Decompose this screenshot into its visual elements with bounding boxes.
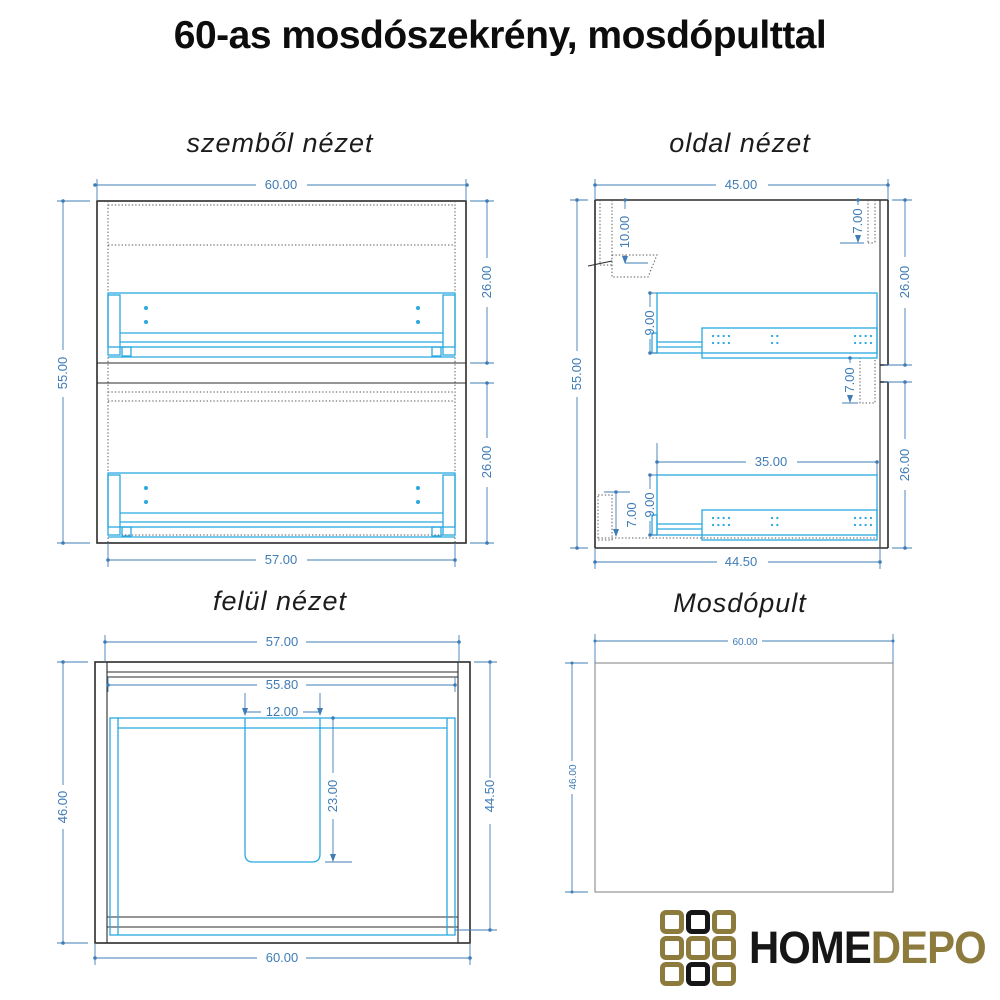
counter-dimensions: 60.00 46.00: [565, 634, 895, 894]
side-drawer-hardware-lower: [652, 475, 877, 540]
logo-text-depo: DEPO: [871, 922, 986, 973]
dim-top-inner-depth: 44.50: [482, 780, 497, 813]
logo-text: HOMEDEPO: [749, 922, 986, 974]
dim-side-top-rail: 7.00: [850, 208, 865, 233]
dim-top-bottom-width: 60.00: [266, 950, 299, 965]
logo-square-gold: [712, 910, 736, 934]
dim-side-bottom-rail: 7.00: [624, 502, 639, 527]
counter-outline: [595, 663, 893, 892]
logo-square-black: [686, 962, 710, 986]
dim-front-lower-drawer: 26.00: [479, 446, 494, 479]
logo-square-gold: [660, 962, 684, 986]
logo-square-gold: [660, 910, 684, 934]
dim-top-inner-width: 55.80: [266, 677, 299, 692]
top-hardware: [110, 718, 455, 935]
dim-side-overall-depth: 45.00: [725, 177, 758, 192]
front-view-drawing: 60.00 55.00 26.00 26.00 57.00: [50, 125, 550, 585]
dim-top-cutout-width: 12.00: [266, 704, 299, 719]
front-dimensions: 60.00 55.00 26.00 26.00 57.00: [55, 177, 494, 567]
dim-side-lower-front: 26.00: [897, 449, 912, 482]
dim-top-outer-width: 57.00: [266, 634, 299, 649]
sink-cutout: [245, 718, 320, 862]
dim-front-overall-height: 55.00: [55, 357, 70, 390]
dim-front-upper-drawer: 26.00: [479, 266, 494, 299]
side-drawer-hardware-upper: [652, 293, 877, 358]
dim-front-inner-width: 57.00: [265, 552, 298, 567]
dim-side-bottom-depth: 44.50: [725, 554, 758, 569]
dim-side-slide-length: 35.00: [755, 454, 788, 469]
dim-side-lower-slide: 9.00: [642, 492, 657, 517]
dim-side-upper-front: 26.00: [897, 266, 912, 299]
side-view-drawing: 45.00 55.00 10.00 7.00 26.00 26.00 7.00 …: [560, 125, 1000, 585]
logo-square-gold: [712, 936, 736, 960]
page-title: 60-as mosdószekrény, mosdópulttal: [0, 14, 1000, 58]
dim-top-cutout-depth: 23.00: [325, 780, 340, 813]
front-drawer-hardware-upper: [108, 293, 455, 357]
dim-side-upper-slide: 9.00: [642, 310, 657, 335]
front-cabinet-outline: [97, 201, 466, 543]
dim-side-hanger-offset: 10.00: [617, 216, 632, 249]
logo-square-black: [686, 910, 710, 934]
dim-side-mid-rail: 7.00: [842, 367, 857, 392]
logo-square-gold: [712, 962, 736, 986]
top-view-drawing: 57.00 55.80 12.00 23.00 46.00 44.50 60.0…: [50, 595, 550, 1000]
logo-text-home: HOME: [749, 922, 871, 973]
side-hidden-edges: [598, 200, 877, 540]
logo-square-gold: [660, 936, 684, 960]
dim-counter-depth: 46.00: [568, 764, 579, 789]
brand-logo: HOMEDEPO: [660, 910, 1000, 986]
dim-front-overall-width: 60.00: [265, 177, 298, 192]
logo-square-gold: [686, 936, 710, 960]
dim-side-overall-height: 55.00: [569, 358, 584, 391]
front-drawer-hardware-lower: [108, 473, 455, 537]
dim-top-overall-depth: 46.00: [55, 791, 70, 824]
counter-view-drawing: 60.00 46.00: [560, 595, 1000, 935]
dim-counter-width: 60.00: [732, 637, 757, 648]
top-dimensions: 57.00 55.80 12.00 23.00 46.00 44.50 60.0…: [55, 634, 497, 965]
logo-grid-icon: [660, 910, 736, 986]
front-hidden-edges: [108, 201, 455, 543]
